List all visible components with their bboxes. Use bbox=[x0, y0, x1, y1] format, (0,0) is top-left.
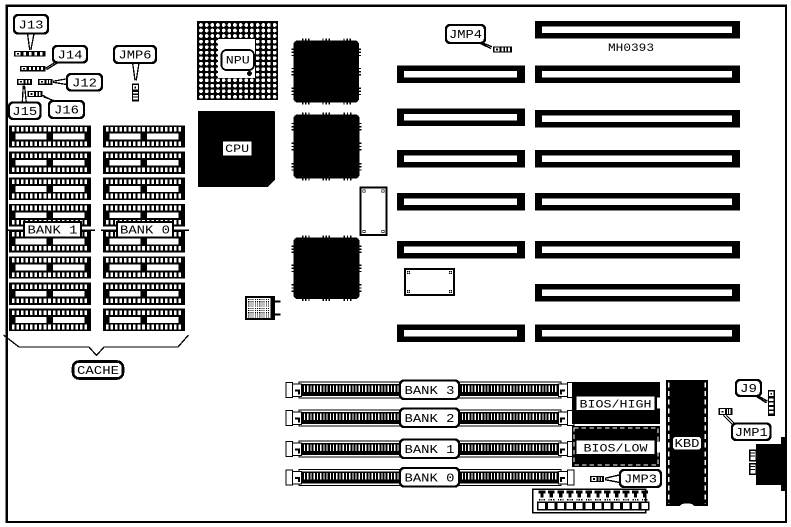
svg-text:JMP1: JMP1 bbox=[735, 426, 768, 440]
svg-text:BANK 1: BANK 1 bbox=[28, 225, 78, 238]
svg-text:CACHE: CACHE bbox=[77, 365, 119, 378]
svg-text:J16: J16 bbox=[54, 104, 79, 118]
svg-text:BANK 1: BANK 1 bbox=[405, 443, 455, 457]
svg-text:MH0393: MH0393 bbox=[608, 43, 654, 55]
svg-text:CPU: CPU bbox=[225, 144, 249, 156]
svg-text:J14: J14 bbox=[58, 48, 83, 62]
svg-text:JMP6: JMP6 bbox=[119, 49, 152, 63]
svg-text:BIOS/HIGH: BIOS/HIGH bbox=[580, 399, 652, 411]
svg-text:JMP4: JMP4 bbox=[449, 28, 482, 42]
svg-text:J12: J12 bbox=[72, 76, 97, 90]
svg-text:KBD: KBD bbox=[675, 438, 700, 451]
svg-text:BANK 0: BANK 0 bbox=[405, 471, 455, 485]
svg-text:JMP3: JMP3 bbox=[624, 473, 657, 487]
svg-text:BANK 2: BANK 2 bbox=[405, 412, 455, 426]
svg-text:BANK 3: BANK 3 bbox=[405, 384, 455, 398]
svg-text:J13: J13 bbox=[19, 18, 44, 32]
svg-text:BIOS/LOW: BIOS/LOW bbox=[584, 443, 648, 455]
svg-text:J15: J15 bbox=[12, 105, 37, 119]
svg-text:NPU: NPU bbox=[226, 56, 250, 68]
svg-text:J9: J9 bbox=[740, 382, 757, 396]
svg-text:BANK 0: BANK 0 bbox=[120, 225, 170, 238]
